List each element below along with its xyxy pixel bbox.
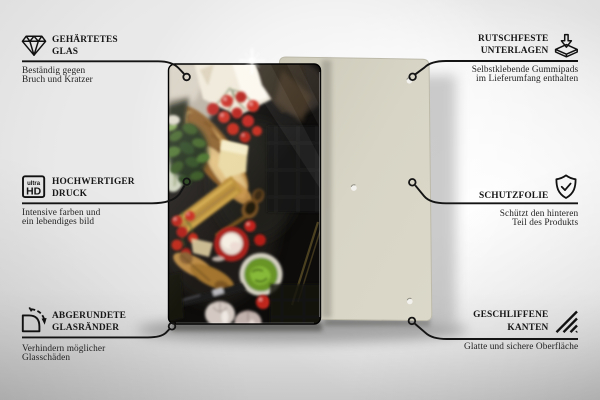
svg-text:HD: HD [26, 187, 42, 198]
